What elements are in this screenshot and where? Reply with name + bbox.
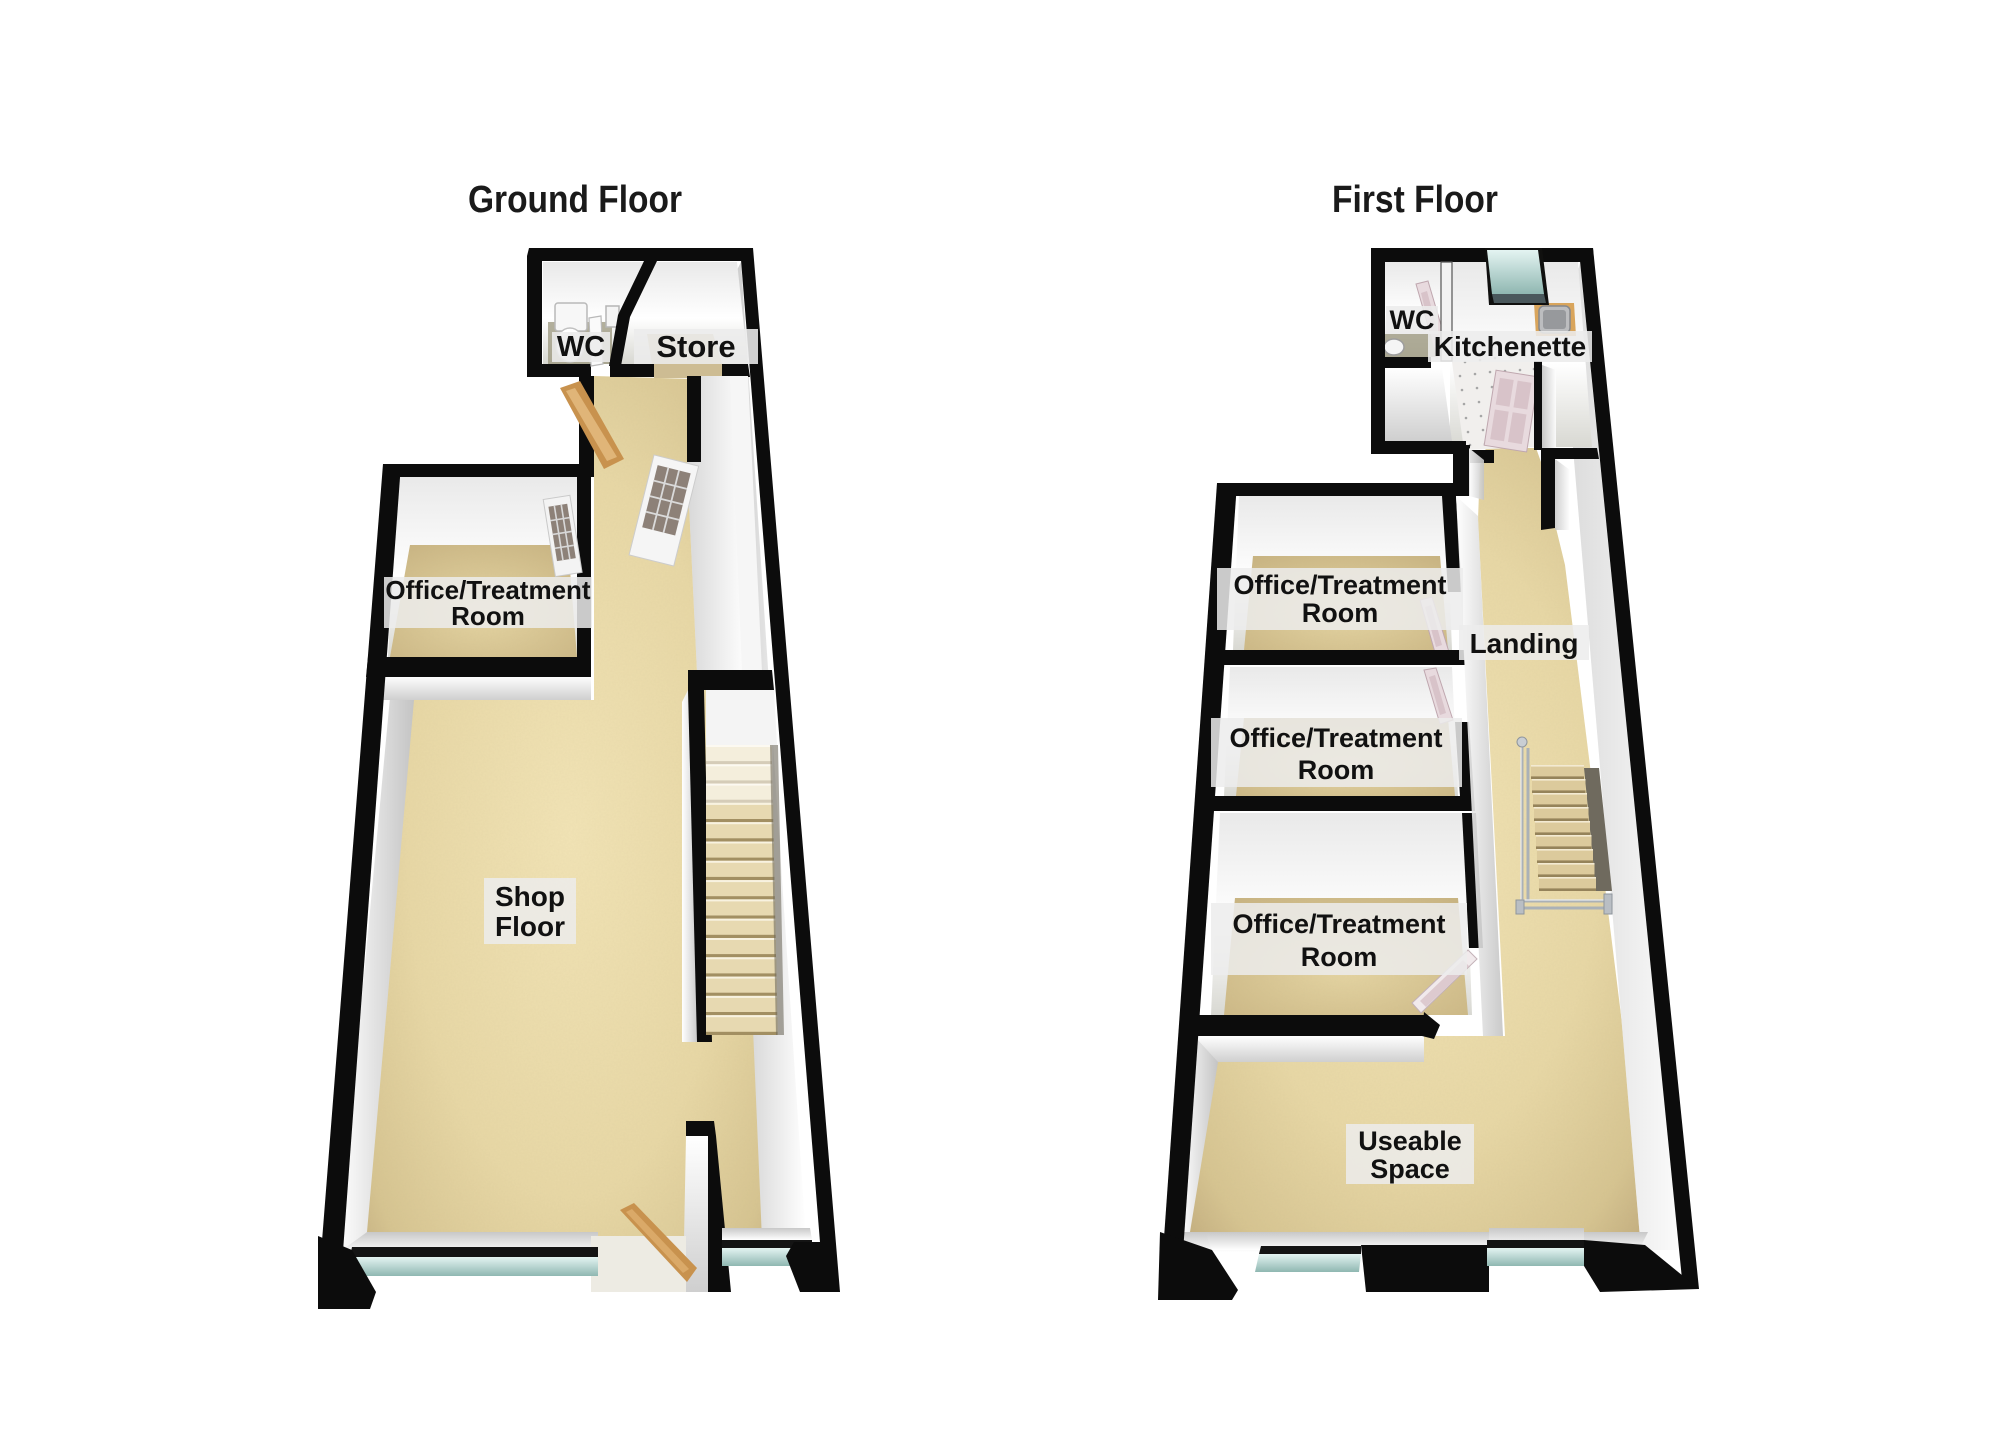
svg-text:Room: Room [1298,755,1375,785]
svg-text:Shop: Shop [495,881,565,912]
svg-text:Office/Treatment: Office/Treatment [1229,723,1442,753]
svg-text:First Floor: First Floor [1332,179,1498,221]
svg-text:Space: Space [1370,1154,1450,1184]
svg-text:Office/Treatment: Office/Treatment [1232,909,1445,939]
svg-text:Store: Store [656,329,735,364]
svg-text:Room: Room [451,601,525,631]
svg-text:Room: Room [1301,942,1378,972]
svg-text:Ground Floor: Ground Floor [468,179,682,221]
svg-text:Office/Treatment: Office/Treatment [1233,570,1446,600]
svg-text:Landing: Landing [1470,628,1579,659]
svg-text:WC: WC [1390,305,1435,335]
svg-text:Floor: Floor [495,911,565,942]
svg-text:Kitchenette: Kitchenette [1434,331,1586,362]
svg-text:Room: Room [1302,598,1379,628]
svg-text:WC: WC [557,331,605,363]
svg-text:Useable: Useable [1358,1126,1462,1156]
